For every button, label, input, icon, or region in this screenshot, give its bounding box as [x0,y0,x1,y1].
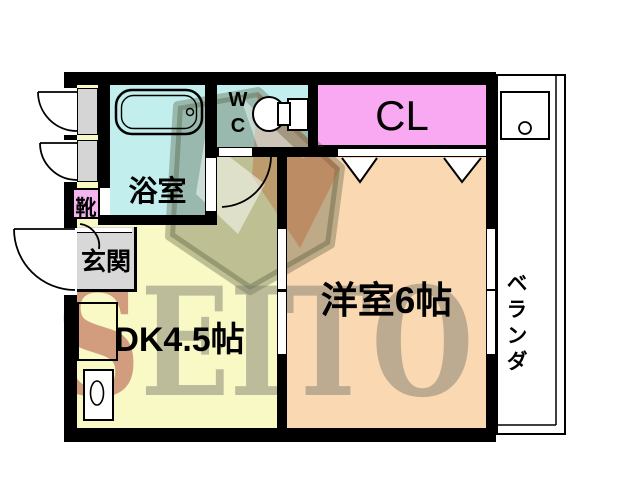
room-label-dining-kitchen: DK4.5帖 [82,312,277,361]
meterbox-lower-door-arc [40,143,77,180]
toilet-label-c: C [227,113,249,139]
folding-door-icon [342,158,481,182]
toilet-icon [253,97,308,131]
room-label-western: 洋室6帖 [287,270,486,324]
floorplan-canvas: SEITO [0,0,640,501]
toilet-label-w: W [227,87,249,113]
bathtub-icon [116,90,202,134]
room-label-toilet: W C [227,87,249,139]
room-label-entrance: 玄関 [74,242,138,278]
hall-door-arc [222,156,271,207]
room-label-bathroom: 浴室 [110,168,205,210]
washing-machine-pan-icon [501,92,549,139]
room-label-shoe-cabinet: 靴 [72,192,100,222]
meterbox-upper-door-arc [38,92,77,131]
sink-icon [84,370,113,420]
room-label-veranda: ベランダ [500,272,530,376]
room-label-closet: CL [318,92,486,140]
entrance-door-arc [14,229,75,290]
